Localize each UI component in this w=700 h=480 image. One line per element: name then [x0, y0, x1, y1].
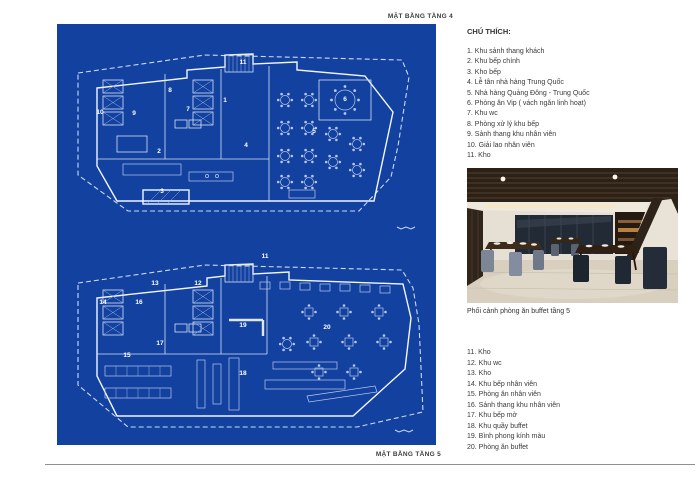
- legend-list-floor5: 11. Kho12. Khu wc13. Kho14. Khu bếp nhân…: [467, 348, 697, 453]
- recessed-light: [613, 175, 618, 180]
- floor5-partitions: [97, 276, 267, 354]
- left-wall: [467, 208, 483, 286]
- floor5-stair: [225, 265, 253, 282]
- room-number: 2: [157, 148, 161, 155]
- floor4-room-numbers: 1234567891011: [96, 59, 347, 195]
- legend-item: 1. Khu sảnh thang khách: [467, 47, 697, 57]
- floor4-site-boundary: [78, 55, 409, 211]
- floor5-room-numbers: 11121314151617181920: [99, 253, 331, 377]
- legend-item: 8. Phòng xử lý khu bếp: [467, 120, 697, 130]
- legend-item: 12. Khu wc: [467, 359, 697, 370]
- restaurant-interior-illustration: [467, 168, 678, 303]
- legend-item: 19. Bình phong kính màu: [467, 432, 697, 443]
- room-number: 5: [312, 128, 316, 135]
- legend-item: 18. Khu quầy buffet: [467, 422, 697, 433]
- legend-list-floor4: 1. Khu sảnh thang khách2. Khu bếp chính3…: [467, 47, 697, 161]
- room-number: 20: [323, 324, 331, 331]
- legend-item: 20. Phòng ăn buffet: [467, 443, 697, 454]
- room-number: 7: [186, 106, 190, 113]
- legend-item: 16. Sảnh thang khu nhân viên: [467, 401, 697, 412]
- floor5-site-boundary: [78, 265, 423, 427]
- legend-item: 17. Khu bếp mở: [467, 411, 697, 422]
- floor5-plan-title: MẶT BẰNG TẦNG 5: [376, 451, 441, 458]
- room-number: 11: [262, 253, 269, 260]
- legend-item: 11. Kho: [467, 348, 697, 359]
- floor4-plan-title: MẶT BẰNG TẦNG 4: [388, 13, 453, 20]
- legend-item: 10. Giải lao nhân viên: [467, 141, 697, 151]
- legend-item: 7. Khu wc: [467, 109, 697, 119]
- room-number: 12: [194, 280, 202, 287]
- room-number: 10: [96, 109, 104, 116]
- floor4-dining-tables: [277, 93, 365, 198]
- floor5-elevators: [103, 290, 213, 335]
- room-number: 18: [239, 370, 247, 377]
- buffet-room-photo: [467, 168, 678, 303]
- presentation-page: MẶT BẰNG TẦNG 4 MẶT BẰNG TẦNG 5: [0, 0, 700, 480]
- floor4-outer-wall: [97, 54, 393, 201]
- floor4-kitchen: [123, 164, 233, 204]
- floor4-elevators: [103, 80, 213, 125]
- floor5-scale-bar: [395, 430, 413, 432]
- legend-item: 13. Kho: [467, 369, 697, 380]
- legend-title: CHÚ THÍCH:: [467, 27, 511, 36]
- legend-item: 5. Nhà hàng Quảng Đông - Trung Quốc: [467, 89, 697, 99]
- room-number: 11: [240, 59, 247, 66]
- room-number: 1: [223, 97, 227, 104]
- room-number: 16: [135, 299, 143, 306]
- room-number: 6: [343, 96, 347, 103]
- legend-item: 3. Kho bếp: [467, 68, 697, 78]
- room-number: 15: [123, 352, 131, 359]
- legend-item: 11. Kho: [467, 151, 697, 161]
- legend-item: 6. Phòng ăn Vip ( vách ngăn linh hoạt): [467, 99, 697, 109]
- footer-divider: [45, 464, 695, 465]
- room-number: 4: [244, 142, 248, 149]
- legend-item: 4. Lễ tân nhà hàng Trung Quốc: [467, 78, 697, 88]
- floor5-open-kitchen: [197, 358, 239, 410]
- room-number: 14: [99, 299, 107, 306]
- room-number: 9: [132, 110, 136, 117]
- recessed-light: [501, 177, 506, 182]
- room-number: 17: [156, 340, 164, 347]
- legend-item: 2. Khu bếp chính: [467, 57, 697, 67]
- floor5-plan: [78, 264, 423, 432]
- legend-item: 9. Sảnh thang khu nhân viên: [467, 130, 697, 140]
- floor5-outer-wall: [97, 264, 411, 416]
- legend-item: 14. Khu bếp nhân viên: [467, 380, 697, 391]
- room-number: 13: [151, 280, 159, 287]
- floor-plans-drawing: 1234567891011 11121314151617181920: [57, 24, 436, 445]
- photo-caption: Phối cảnh phòng ăn buffet tầng 5: [467, 308, 570, 315]
- room-number: 8: [168, 87, 172, 94]
- blueprint-panel: 1234567891011 11121314151617181920: [57, 24, 436, 445]
- floor5-staff-dining: [105, 366, 171, 398]
- room-number: 19: [239, 322, 247, 329]
- room-number: 3: [160, 188, 164, 195]
- ceiling: [467, 168, 678, 202]
- legend-item: 15. Phòng ăn nhân viên: [467, 390, 697, 401]
- floor4-scale-bar: [397, 227, 415, 229]
